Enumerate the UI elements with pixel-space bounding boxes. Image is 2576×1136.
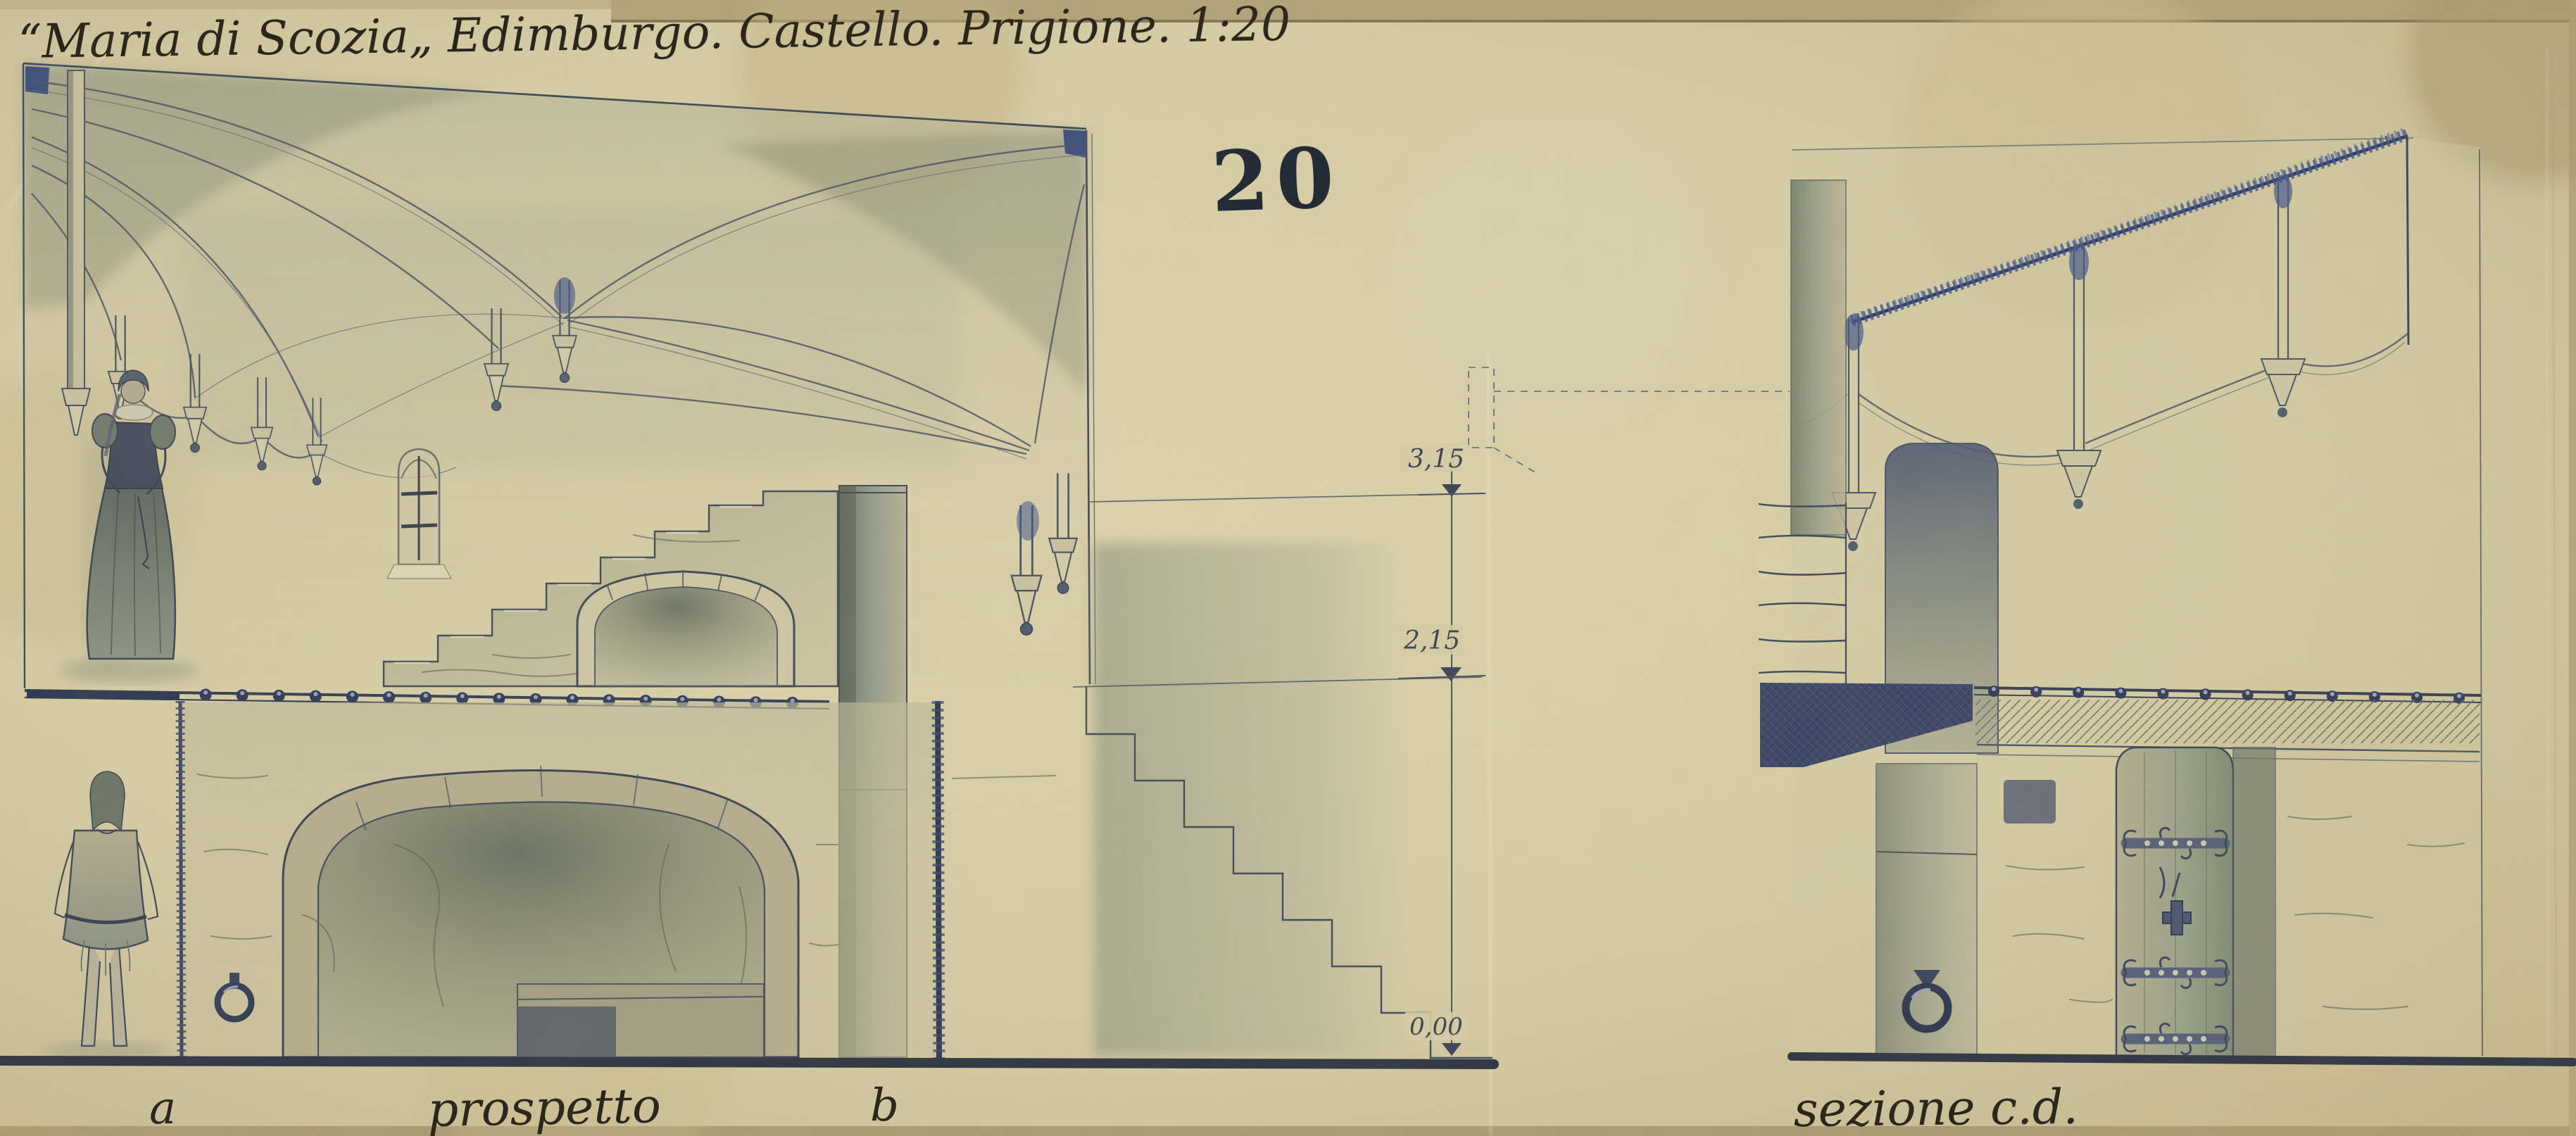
- drawing-canvas: “Maria di Scozia„ Edimburgo. Castello. P…: [0, 0, 2576, 1136]
- paper-grain-texture: [0, 0, 2576, 1136]
- scanned-drawing-page: “Maria di Scozia„ Edimburgo. Castello. P…: [0, 0, 2576, 1136]
